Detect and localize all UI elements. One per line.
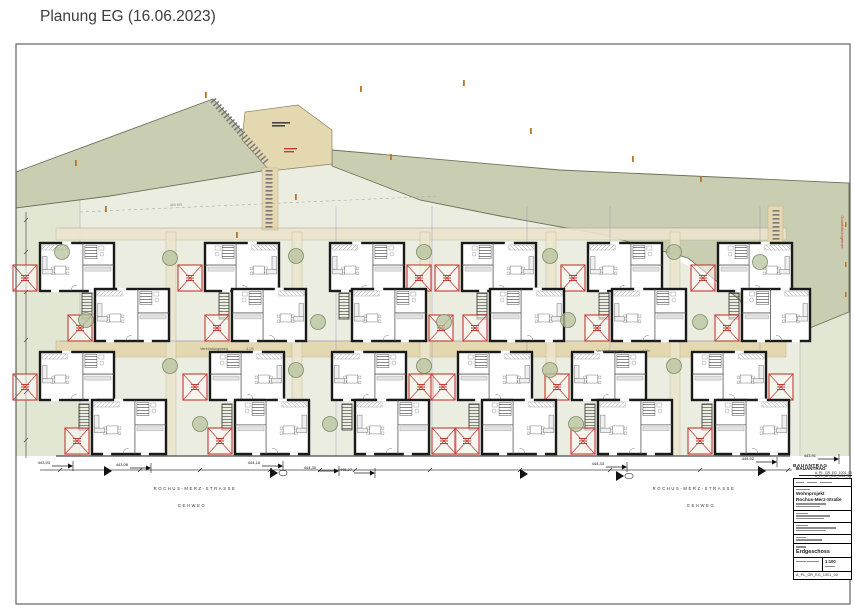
tree-icon [311, 315, 326, 330]
tree-icon [193, 417, 208, 432]
tree-icon [163, 251, 178, 266]
terrace-marking [431, 374, 455, 400]
terrace-marking [455, 428, 479, 454]
stairs-icon [397, 292, 409, 305]
terrace-marking [178, 265, 202, 291]
terrace-marking [208, 428, 232, 454]
tree-icon [417, 359, 432, 374]
stairs-icon [85, 246, 97, 259]
terrace-marking [205, 315, 229, 341]
plan-content-section: Erdgeschoss [794, 544, 851, 558]
stairs-icon [227, 355, 239, 368]
stairs-icon [709, 355, 721, 368]
stairs-icon [252, 403, 264, 416]
path-label: Verbindungsweg [200, 347, 228, 351]
plan-content-label: Erdgeschoss [796, 549, 849, 555]
fine-print-line [825, 566, 835, 568]
fine-print-mark [205, 92, 207, 98]
street-label: ROCHUS-MERZ-STRASSE [154, 486, 237, 491]
svg-text:443,08: 443,08 [116, 462, 129, 467]
stairs-icon [499, 403, 511, 416]
svg-text:444,33: 444,33 [592, 461, 605, 466]
stairs-icon [400, 403, 412, 416]
house-unit [585, 288, 686, 343]
sidewalk-label: GEHWEG [178, 503, 207, 508]
path-slope-label: 4,1% [246, 347, 254, 351]
exterior-stairs-icon [79, 404, 89, 430]
terrace-marking [13, 374, 37, 400]
tree-icon [437, 315, 452, 330]
title-block-box: Wohnprojekt Rochus-Merz-Straße Erdgescho… [793, 478, 852, 580]
terrace-marking [691, 265, 715, 291]
tree-icon [561, 313, 576, 328]
terrace-marking [183, 374, 207, 400]
tree-icon [543, 249, 558, 264]
fine-print-mark [700, 176, 702, 182]
fine-print-line [796, 539, 822, 541]
tree-icon [569, 417, 584, 432]
tree-icon [55, 245, 70, 260]
doc-number-bottom: A_PL_GR_EG_1001_00 [794, 572, 851, 579]
fine-print-mark [360, 86, 362, 92]
fine-print-line [807, 482, 817, 484]
fine-print-mark [530, 128, 532, 134]
terrace-marking [13, 265, 37, 291]
house-unit [208, 399, 309, 456]
fine-print-mark [236, 232, 238, 238]
tree-icon [163, 359, 178, 374]
stairs-icon [643, 403, 655, 416]
site-plan-svg: ROCHUS-MERZ-STRASSEGEHWEGROCHUS-MERZ-STR… [0, 0, 855, 610]
tree-icon [79, 313, 94, 328]
fine-print-mark [295, 194, 297, 200]
architect-section [794, 523, 851, 535]
terrace-marking [435, 265, 459, 291]
fine-print-line [796, 515, 830, 517]
fine-print-line [796, 489, 810, 491]
stairs-icon [757, 292, 769, 305]
tree-icon [289, 363, 304, 378]
fine-print-line [796, 503, 826, 505]
fine-print-mark [632, 156, 634, 162]
stairs-icon [479, 246, 491, 259]
contour-label: 400 NN [170, 203, 183, 207]
terrace-marking [65, 428, 89, 454]
doc-type-label: BAUANTRAG [793, 464, 852, 470]
terrace-marking [432, 428, 456, 454]
revision-index-row [794, 479, 851, 486]
terrace-marking [715, 315, 739, 341]
svg-text:445,27: 445,27 [340, 467, 353, 472]
svg-text:444,30: 444,30 [304, 465, 317, 470]
fine-print-mark [272, 122, 290, 124]
fine-print-line [796, 506, 820, 508]
project-section: Wohnprojekt Rochus-Merz-Straße [794, 487, 851, 511]
tree-icon [753, 255, 768, 270]
fine-print-line [820, 482, 832, 484]
terrace-marking [571, 428, 595, 454]
meta-scale-cell: 1:100 [823, 558, 851, 571]
planner-section [794, 535, 851, 545]
fine-print-mark [284, 148, 297, 149]
stairs-icon [617, 355, 629, 368]
path-label: Verbindungsweg [596, 349, 624, 353]
tree-icon [289, 249, 304, 264]
house-unit [688, 399, 789, 456]
exterior-stairs-icon [702, 404, 712, 430]
stairs-icon [657, 292, 669, 305]
terrace-marking [769, 374, 793, 400]
tree-icon [693, 315, 708, 330]
fine-print-mark [284, 151, 294, 152]
exterior-stairs-icon [342, 404, 352, 430]
fine-print-mark [845, 292, 847, 297]
stairs-icon [85, 355, 97, 368]
doc-number-top: A_PL_GR_EG_1001_00 [799, 471, 852, 477]
svg-text:444,18: 444,18 [248, 460, 261, 465]
stairs-icon [140, 292, 152, 305]
boundary-label: Grundstücksgrenze [840, 216, 844, 249]
fine-print-mark [390, 154, 392, 160]
meta-date-cell [794, 558, 823, 571]
house-unit [65, 399, 166, 456]
terrace-marking [463, 315, 487, 341]
fine-print-mark [845, 222, 847, 227]
tree-icon [323, 417, 338, 432]
path-slope-label: 4,1% [642, 349, 650, 353]
tree-icon [667, 245, 682, 260]
house-unit [205, 288, 306, 343]
terrace-marking [407, 265, 431, 291]
stairs-icon [249, 292, 261, 305]
fine-print-mark [272, 125, 285, 127]
street-zone [16, 456, 850, 604]
tree-icon [417, 245, 432, 260]
tree-icon [667, 359, 682, 374]
fine-print-line [796, 537, 806, 539]
fine-print-line [796, 525, 808, 527]
svg-text:444,92: 444,92 [742, 456, 755, 461]
fine-print-line [796, 482, 804, 484]
svg-text:443,91: 443,91 [804, 453, 817, 458]
stairs-icon [222, 246, 234, 259]
exterior-stairs-icon [222, 404, 232, 430]
fine-print-mark [75, 160, 77, 166]
house-unit [715, 288, 810, 343]
terrace-marking [585, 315, 609, 341]
tree-icon [543, 363, 558, 378]
stairs-icon [735, 246, 747, 259]
terrace-marking [688, 428, 712, 454]
fine-print-line [796, 518, 824, 520]
fine-print-mark [105, 206, 107, 212]
exterior-stairs-icon [469, 404, 479, 430]
fine-print-mark [463, 80, 465, 86]
fine-print-line [796, 513, 808, 515]
terrace-marking [409, 374, 433, 400]
house-unit [455, 399, 556, 456]
stairs-icon [377, 355, 389, 368]
meta-section: 1:100 [794, 558, 851, 572]
terrace-marking [545, 374, 569, 400]
stairs-icon [732, 403, 744, 416]
house-unit [463, 288, 564, 343]
house-unit [571, 399, 672, 456]
fine-print-line [796, 561, 806, 563]
street-label: ROCHUS-MERZ-STRASSE [653, 486, 736, 491]
fine-print-line [807, 561, 819, 563]
fine-print-line [796, 546, 806, 548]
exterior-stairs-icon [585, 404, 595, 430]
stairs-icon [137, 403, 149, 416]
terrace-marking [561, 265, 585, 291]
stairs-icon [633, 246, 645, 259]
project-name-line2: Rochus-Merz-Straße [796, 497, 849, 503]
title-block: BAUANTRAG A_PL_GR_EG_1001_00 Wohnprojekt… [793, 464, 852, 580]
stairs-icon [375, 246, 387, 259]
fine-print-line [796, 527, 836, 529]
fine-print-mark [845, 262, 847, 267]
stairs-icon [475, 355, 487, 368]
exterior-stairs-icon [339, 293, 349, 319]
stairs-icon [507, 292, 519, 305]
fine-print-line [796, 530, 826, 532]
sidewalk-label: GEHWEG [687, 503, 716, 508]
client-section [794, 511, 851, 523]
svg-text:443,93: 443,93 [38, 460, 51, 465]
scale-value: 1:100 [825, 559, 849, 564]
